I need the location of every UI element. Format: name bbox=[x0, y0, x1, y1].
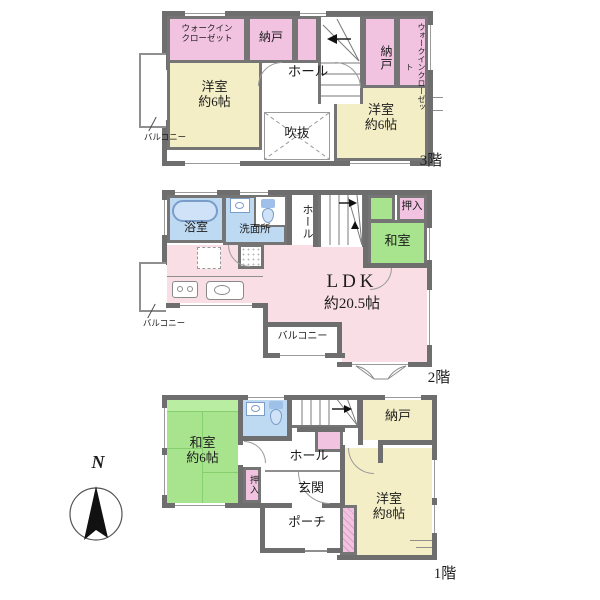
window-1f-bottom-washitsu bbox=[175, 503, 225, 508]
window-2f-right-ldk bbox=[427, 290, 432, 345]
label-nando-right-3f: 納戸 bbox=[368, 26, 392, 90]
label-ldk-size: 約20.5帖 bbox=[292, 296, 412, 313]
kitchen-sink-icon bbox=[206, 281, 244, 300]
label-balcony-2f-left: バルコニー bbox=[133, 319, 195, 329]
window-3f-top-center bbox=[300, 11, 326, 16]
yoshitsu-1f-size: 約8帖 bbox=[373, 506, 406, 521]
wall-1f-porch-left bbox=[260, 503, 265, 553]
yoshitsu-left-size: 約6帖 bbox=[198, 94, 231, 109]
wall-1f-nando-stub bbox=[378, 440, 383, 463]
stairs-2f bbox=[318, 192, 365, 247]
wall-1f-porch-bottom-right bbox=[327, 548, 342, 553]
wall-2f-washitsu-left bbox=[363, 190, 368, 268]
label-floor-2: 2階 bbox=[418, 370, 460, 387]
wall-1f-bottom-right bbox=[337, 555, 437, 560]
compass-north-label: N bbox=[86, 452, 110, 472]
door-arc-washroom-1f bbox=[244, 441, 266, 463]
label-porch: ポーチ bbox=[276, 515, 338, 529]
wall-2f-balcony-right bbox=[337, 322, 342, 358]
sink-icon-1f bbox=[246, 402, 265, 416]
label-yoshitsu-right-3f: 洋室約6帖 bbox=[334, 103, 428, 132]
label-oshiire-1f: 押入 bbox=[245, 469, 259, 501]
label-wic-right-3f: ウォークインクローゼット bbox=[398, 19, 427, 114]
wic-left-line2: クローゼット bbox=[181, 33, 232, 43]
wall-1f-nando-left bbox=[358, 395, 363, 445]
label-washroom-2f: 洗面所 bbox=[223, 224, 287, 236]
wall-2f-washroom-right bbox=[287, 190, 292, 245]
window-1f-right-upper bbox=[432, 460, 437, 498]
label-nando-1f: 納戸 bbox=[368, 409, 428, 424]
label-yoshitsu-left-3f: 洋室約6帖 bbox=[167, 80, 262, 109]
washitsu-1f-size: 約6帖 bbox=[186, 450, 219, 465]
label-oshiire-2f: 押入 bbox=[397, 201, 427, 213]
room-washitsu-2f-upper bbox=[368, 195, 395, 222]
washitsu-1f-name: 和室 bbox=[189, 435, 215, 450]
window-2f-balcony bbox=[280, 353, 325, 358]
stairs-1f-arrow bbox=[344, 405, 352, 413]
label-balcony-3f: バルコニー bbox=[134, 133, 196, 143]
wall-1f-nando-bottom bbox=[378, 440, 437, 445]
bay-mark-1f-2 bbox=[416, 547, 432, 548]
tatami-line-h2 bbox=[202, 472, 238, 473]
yoshitsu-right-name: 洋室 bbox=[368, 102, 394, 117]
stairs-2f-arrow-up bbox=[349, 199, 357, 207]
label-washitsu-1f: 和室約6帖 bbox=[167, 436, 238, 465]
wall-1f-stairs-bottom bbox=[297, 427, 345, 432]
french-door-fans bbox=[350, 365, 412, 383]
stove-burner-2 bbox=[187, 286, 193, 292]
window-3f-bottom-left bbox=[185, 161, 240, 166]
label-fukinuke: 吹抜 bbox=[264, 126, 330, 140]
stove-burner-1 bbox=[177, 286, 183, 292]
wall-1f-washroom-right bbox=[287, 395, 292, 441]
window-2f-right-washitsu bbox=[427, 228, 432, 260]
floor-plan-canvas: ウォークインクローゼット 納戸 納戸 ウォークインクローゼット 洋室約6帖 ホー… bbox=[0, 0, 600, 600]
compass-rose bbox=[62, 478, 130, 548]
wall-1f-genkan-porch-left bbox=[260, 503, 292, 508]
label-yoshitsu-1f: 洋室約8帖 bbox=[352, 492, 426, 521]
wall-1f-washitsu-right-lower bbox=[238, 465, 243, 508]
bay-mark-1f-1 bbox=[410, 540, 432, 541]
window-1f-right-lower bbox=[432, 505, 437, 533]
label-bath: 浴室 bbox=[167, 221, 225, 234]
label-ldk-name: LDK bbox=[302, 271, 402, 292]
window-2f-top-bath bbox=[175, 190, 217, 195]
label-hall-2f: ホール bbox=[293, 197, 313, 247]
kitchen-counter-line bbox=[167, 276, 263, 277]
stairs-2f-arrow-down bbox=[351, 221, 359, 229]
wall-1f-porch-bottom-left bbox=[260, 548, 305, 553]
yoshitsu-right-size: 約6帖 bbox=[365, 117, 398, 132]
label-floor-1: 1階 bbox=[424, 566, 466, 583]
label-hall-1f: ホール bbox=[278, 449, 340, 464]
window-3f-right bbox=[428, 25, 433, 70]
balcony-2f-left bbox=[139, 262, 166, 312]
wic-left-line1: ウォークイン bbox=[181, 23, 232, 33]
label-wic-left-3f: ウォークインクローゼット bbox=[167, 24, 247, 43]
yoshitsu-1f-name: 洋室 bbox=[376, 491, 402, 506]
window-3f-bottom-right bbox=[350, 161, 410, 166]
stairs-2f-treads bbox=[321, 195, 362, 245]
stairs-1f bbox=[292, 398, 360, 428]
label-nando-top-3f: 納戸 bbox=[247, 31, 295, 44]
sink-icon-2f bbox=[230, 198, 250, 213]
kitchen-sink-bowl bbox=[214, 285, 230, 295]
window-1f-top-nando bbox=[385, 395, 421, 400]
balcony-3f bbox=[139, 53, 166, 128]
wall-2f-stairs-left bbox=[313, 190, 318, 247]
label-balcony-2f-bottom: バルコニー bbox=[268, 331, 337, 342]
tatami-edge-band bbox=[167, 400, 238, 412]
sink-bowl-2f bbox=[235, 202, 244, 209]
wall-1f-yoshitsu-left bbox=[340, 445, 345, 505]
yoshitsu-left-name: 洋室 bbox=[201, 79, 227, 94]
bathtub-icon bbox=[172, 200, 218, 222]
porch-entry-step-line bbox=[305, 550, 327, 552]
laundry-space-dashed-box bbox=[197, 247, 221, 269]
compass-needle bbox=[84, 486, 108, 540]
bay-window-mark-3f-2 bbox=[433, 110, 443, 111]
window-1f-top-washroom bbox=[248, 395, 284, 400]
stairs-1f-treads bbox=[292, 398, 357, 425]
stove-icon bbox=[172, 281, 198, 298]
label-floor-3: 3階 bbox=[410, 153, 452, 170]
toilet-tank-2f bbox=[261, 199, 275, 208]
window-3f-top-left bbox=[185, 11, 225, 16]
window-2f-top-washroom bbox=[240, 190, 268, 195]
wall-2f-balcony-top bbox=[263, 322, 342, 327]
label-genkan: 玄関 bbox=[285, 481, 337, 496]
bay-window-mark-3f-1 bbox=[433, 97, 443, 98]
window-2f-kitchen bbox=[180, 303, 252, 308]
sink-bowl-1f bbox=[251, 405, 260, 412]
label-washitsu-2f: 和室 bbox=[368, 234, 427, 249]
toilet-tank-1f bbox=[269, 401, 283, 409]
label-hall-3f: ホール bbox=[268, 64, 348, 79]
